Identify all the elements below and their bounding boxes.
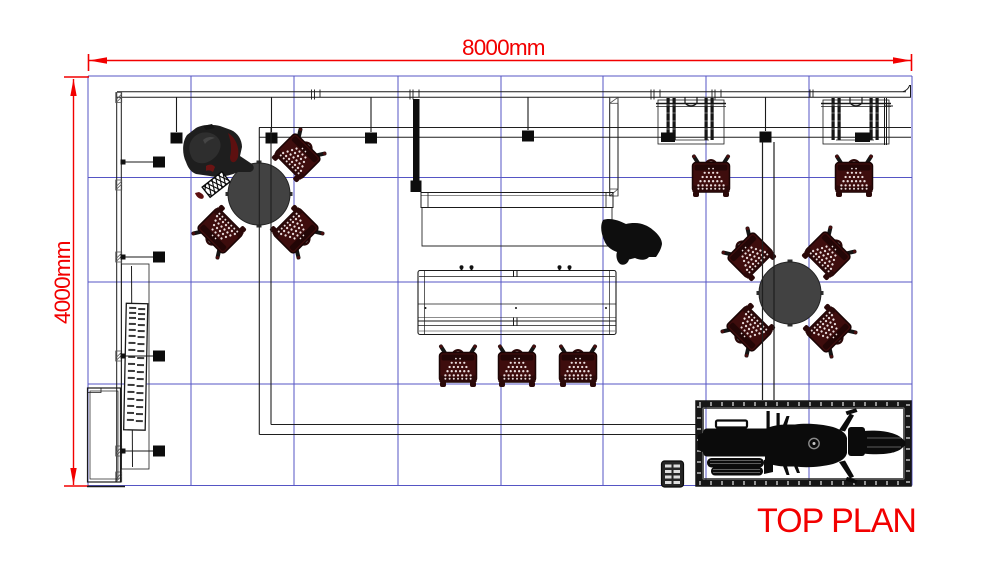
- svg-text:4000mm: 4000mm: [50, 241, 75, 324]
- svg-text:TOP PLAN: TOP PLAN: [757, 502, 916, 540]
- svg-text:8000mm: 8000mm: [462, 35, 545, 60]
